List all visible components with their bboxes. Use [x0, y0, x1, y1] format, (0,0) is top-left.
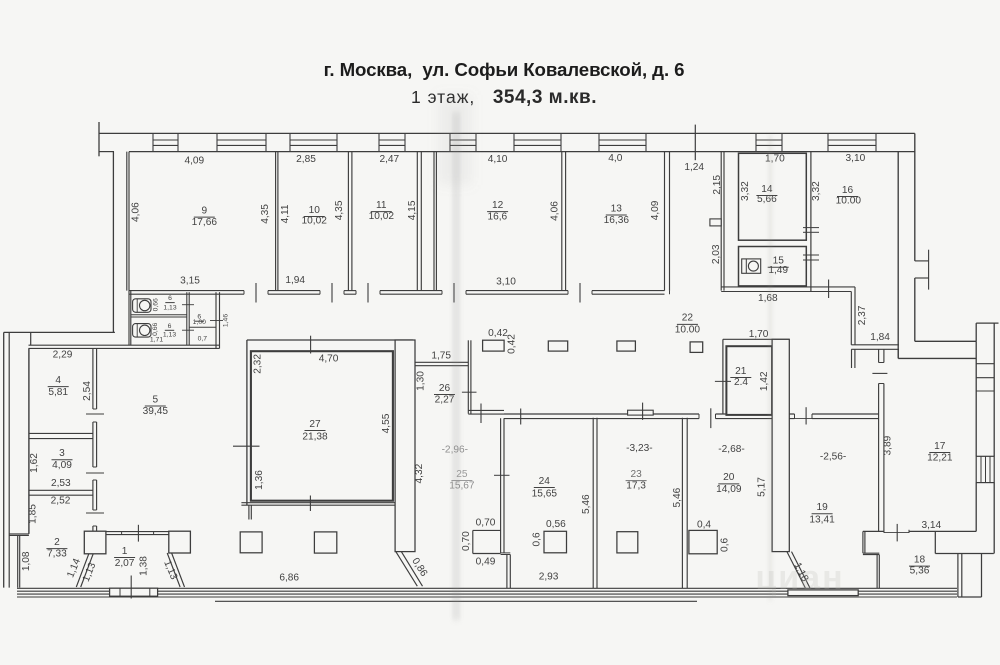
svg-text:21,38: 21,38 [302, 432, 328, 443]
svg-text:1,13: 1,13 [163, 305, 176, 312]
svg-text:3,10: 3,10 [846, 153, 866, 164]
svg-text:2,47: 2,47 [379, 154, 399, 165]
svg-text:19: 19 [816, 502, 828, 513]
svg-text:циан: циан [755, 559, 844, 597]
svg-text:1,38: 1,38 [139, 556, 150, 576]
svg-text:0,4: 0,4 [697, 520, 711, 531]
svg-text:4,11: 4,11 [280, 204, 291, 223]
svg-text:1,94: 1,94 [285, 275, 305, 286]
svg-text:17,66: 17,66 [192, 217, 218, 228]
svg-text:1,46: 1,46 [223, 314, 230, 327]
svg-text:12: 12 [492, 200, 504, 211]
svg-text:2,07: 2,07 [115, 558, 135, 569]
svg-text:5,46: 5,46 [672, 487, 683, 507]
svg-text:0,70: 0,70 [461, 531, 472, 551]
svg-text:5,46: 5,46 [581, 494, 592, 514]
svg-text:0,49: 0,49 [476, 557, 496, 568]
svg-text:1,36: 1,36 [254, 470, 265, 490]
svg-text:1,71: 1,71 [150, 336, 163, 343]
svg-text:3,89: 3,89 [882, 435, 893, 455]
svg-text:27: 27 [309, 419, 321, 430]
svg-text:10,02: 10,02 [302, 216, 328, 227]
svg-text:2: 2 [54, 537, 60, 548]
svg-text:5,66: 5,66 [757, 194, 777, 205]
svg-text:4: 4 [55, 375, 61, 386]
svg-text:39,45: 39,45 [143, 406, 169, 417]
svg-text:1,30: 1,30 [416, 371, 427, 391]
svg-text:2,27: 2,27 [435, 395, 455, 406]
svg-text:15,65: 15,65 [532, 488, 558, 499]
svg-text:5,81: 5,81 [48, 387, 68, 398]
svg-text:3,10: 3,10 [496, 277, 516, 288]
svg-text:16,36: 16,36 [604, 215, 630, 226]
svg-text:0,56: 0,56 [546, 519, 566, 530]
svg-text:6: 6 [168, 323, 172, 330]
svg-text:-2,56-: -2,56- [820, 451, 846, 462]
svg-text:14,09: 14,09 [716, 484, 742, 495]
svg-text:3,32: 3,32 [740, 181, 751, 201]
svg-text:1,24: 1,24 [684, 162, 704, 173]
svg-text:4,06: 4,06 [550, 201, 561, 221]
svg-text:1,13: 1,13 [81, 561, 99, 584]
svg-text:4,10: 4,10 [488, 154, 508, 165]
svg-text:4,09: 4,09 [52, 460, 72, 471]
svg-text:2,29: 2,29 [53, 350, 73, 361]
svg-text:5,17: 5,17 [757, 477, 768, 497]
svg-text:5: 5 [152, 394, 158, 405]
svg-text:16,6: 16,6 [487, 212, 507, 223]
svg-text:1,08: 1,08 [21, 551, 32, 571]
svg-text:0,66: 0,66 [152, 322, 159, 335]
svg-text:2,93: 2,93 [539, 572, 559, 583]
svg-text:4,70: 4,70 [319, 353, 339, 364]
svg-text:1,84: 1,84 [870, 332, 890, 343]
svg-text:13: 13 [611, 203, 623, 214]
svg-text:1,00: 1,00 [193, 319, 206, 326]
svg-text:21: 21 [735, 366, 747, 377]
svg-text:2,85: 2,85 [296, 154, 316, 165]
svg-text:7,33: 7,33 [47, 548, 67, 559]
svg-text:18: 18 [914, 554, 926, 565]
svg-text:2.4: 2.4 [734, 377, 748, 388]
svg-text:3,14: 3,14 [921, 520, 941, 531]
svg-text:4,15: 4,15 [407, 200, 418, 220]
svg-text:9: 9 [201, 205, 207, 216]
svg-text:-2,68-: -2,68- [718, 444, 744, 455]
svg-text:4,09: 4,09 [184, 155, 204, 166]
svg-text:4,35: 4,35 [260, 204, 271, 224]
svg-text:2,03: 2,03 [711, 244, 722, 264]
svg-text:6,86: 6,86 [279, 573, 299, 584]
svg-text:4,32: 4,32 [414, 463, 425, 483]
svg-text:0,70: 0,70 [476, 518, 496, 529]
svg-text:6: 6 [168, 295, 172, 302]
svg-text:3,32: 3,32 [811, 181, 822, 201]
svg-text:4,06: 4,06 [131, 202, 142, 222]
svg-text:0,86: 0,86 [409, 556, 429, 579]
svg-text:1,68: 1,68 [758, 293, 778, 304]
svg-text:23: 23 [630, 469, 642, 480]
svg-text:24: 24 [539, 476, 551, 487]
svg-text:4,0: 4,0 [608, 153, 622, 164]
svg-text:20: 20 [723, 472, 735, 483]
svg-text:10,02: 10,02 [369, 211, 395, 222]
svg-text:26: 26 [439, 383, 451, 394]
svg-text:2,52: 2,52 [51, 496, 71, 507]
svg-text:0,7: 0,7 [198, 336, 208, 343]
svg-text:17: 17 [934, 441, 946, 452]
svg-text:0,42: 0,42 [506, 334, 517, 354]
svg-text:3: 3 [59, 448, 65, 459]
svg-text:10.00: 10.00 [675, 325, 701, 336]
svg-text:0,42: 0,42 [488, 328, 508, 339]
svg-text:4,55: 4,55 [381, 413, 392, 433]
svg-text:11: 11 [376, 200, 387, 211]
svg-text:0,66: 0,66 [152, 298, 159, 311]
svg-text:1,13: 1,13 [163, 332, 176, 339]
svg-text:3,15: 3,15 [180, 276, 200, 287]
svg-text:2,15: 2,15 [712, 175, 723, 195]
svg-text:10: 10 [309, 205, 321, 216]
svg-text:2,53: 2,53 [51, 478, 71, 489]
svg-text:1,70: 1,70 [749, 329, 769, 340]
svg-text:5,36: 5,36 [910, 565, 930, 576]
svg-text:0,6: 0,6 [719, 537, 730, 551]
svg-text:2,32: 2,32 [253, 354, 264, 374]
svg-text:16: 16 [842, 185, 854, 196]
svg-text:2,37: 2,37 [857, 305, 868, 325]
svg-text:1,75: 1,75 [431, 350, 451, 361]
svg-text:10.00: 10.00 [836, 196, 862, 207]
svg-text:17,3: 17,3 [626, 481, 646, 492]
svg-text:1,85: 1,85 [27, 504, 38, 524]
svg-text:1: 1 [122, 546, 128, 557]
svg-text:4,35: 4,35 [334, 200, 345, 220]
svg-text:2,54: 2,54 [82, 381, 93, 401]
svg-text:-3,23-: -3,23- [626, 443, 652, 454]
svg-text:22: 22 [682, 313, 694, 324]
svg-text:1,62: 1,62 [29, 453, 40, 473]
svg-text:12,21: 12,21 [927, 453, 953, 464]
svg-text:4,09: 4,09 [650, 200, 661, 220]
svg-text:13,41: 13,41 [809, 514, 835, 525]
svg-text:0,6: 0,6 [532, 532, 543, 546]
